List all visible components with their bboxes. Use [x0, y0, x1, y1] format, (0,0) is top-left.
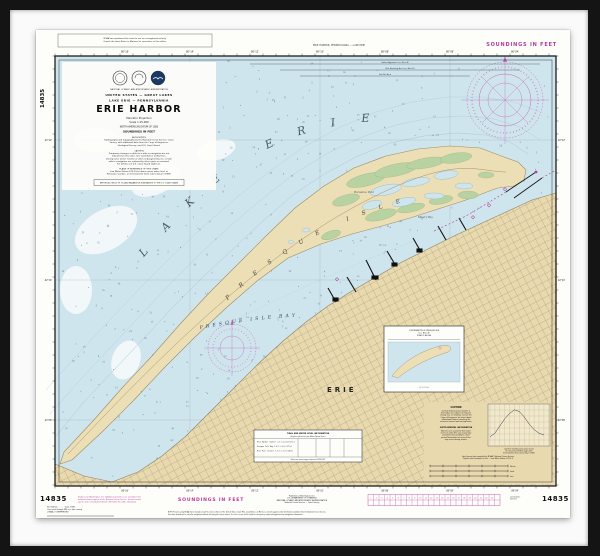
mat: Harbor Approach (see Note A) Pilot Board…	[10, 10, 588, 546]
svg-text:42°10': 42°10'	[558, 279, 566, 282]
svg-text:8: 8	[409, 498, 410, 500]
svg-text:indicated on this chart. See L: indicated on this chart. See Local Notic…	[112, 155, 167, 158]
lake-level-graph	[488, 404, 550, 446]
svg-text:this chart should not be used: this chart should not be used for naviga…	[168, 513, 303, 516]
svg-text:7: 7	[403, 498, 404, 500]
svg-text:80°04': 80°04'	[511, 490, 519, 493]
svg-text:17: 17	[458, 498, 460, 500]
svg-text:Consult the latest Notice to M: Consult the latest Notice to Mariners fo…	[103, 40, 167, 43]
svg-text:TIDAL AND WATER LEVEL INFORMAT: TIDAL AND WATER LEVEL INFORMATION	[287, 433, 330, 435]
chart-number-bottom-left: 14835	[40, 495, 67, 503]
svg-text:80°14': 80°14'	[186, 51, 194, 54]
svg-text:2: 2	[376, 498, 377, 500]
svg-text:NOTE: Persons using NOAA chart: NOTE: Persons using NOAA charts should c…	[168, 511, 326, 514]
svg-text:19: 19	[469, 498, 471, 500]
soundings-in-feet-bottom: SOUNDINGS IN FEET	[178, 497, 244, 503]
misery-bay-label: Misery Bay	[417, 215, 433, 219]
svg-text:80°04': 80°04'	[511, 51, 519, 54]
svg-text:42°12': 42°12'	[558, 139, 566, 142]
svg-text:Hydrography and topography by: Hydrography and topography by the Nation…	[104, 139, 173, 142]
framed-chart-photo: Harbor Approach (see Note A) Pilot Board…	[0, 0, 600, 556]
side-chart-number: 14835	[40, 89, 46, 108]
svg-text:Rimouski, Quebec, on Internati: Rimouski, Quebec, on International Great…	[107, 173, 171, 176]
svg-text:CONTINUATION OF PRESQUE ISLE: CONTINUATION OF PRESQUE ISLE	[409, 329, 440, 332]
svg-text:LAKE ERIE — PENNSYLVANIA: LAKE ERIE — PENNSYLVANIA	[109, 99, 169, 103]
svg-text:10: 10	[419, 498, 421, 500]
title-block: NATIONAL OCEANIC AND ATMOSPHERIC ADMINIS…	[62, 62, 216, 190]
soundings-in-feet-top: SOUNDINGS IN FEET	[486, 42, 557, 48]
svg-text:For details see U.S. Coast Gua: For details see U.S. Coast Guard Light L…	[117, 163, 161, 166]
svg-text:80°12': 80°12'	[251, 51, 259, 54]
svg-text:Pilot Boarding Area (see Note: Pilot Boarding Area (see Note B)	[386, 67, 415, 70]
svg-text:NORTH AMERICAN DATUM OF 1983: NORTH AMERICAN DATUM OF 1983	[120, 126, 159, 129]
svg-text:20: 20	[474, 498, 476, 500]
svg-text:80°14': 80°14'	[186, 490, 194, 493]
svg-text:80°16': 80°16'	[121, 490, 129, 493]
svg-text:22: 22	[485, 498, 487, 500]
svg-text:3: 3	[381, 498, 382, 500]
svg-text:entrance channel and turning b: entrance channel and turning basin.	[440, 420, 472, 423]
svg-text:AUTHORITIES: AUTHORITIES	[132, 136, 146, 139]
svg-text:SUPPLEMENTAL INFORMATION: SUPPLEMENTAL INFORMATION	[440, 427, 473, 429]
svg-text:PLANE OF REFERENCE OF THIS CHA: PLANE OF REFERENCE OF THIS CHART	[119, 168, 159, 171]
svg-text:80°06': 80°06'	[446, 490, 454, 493]
svg-text:(see Note A): (see Note A)	[418, 332, 429, 335]
top-margin-title: ERIE HARBOR, PENNSYLVANIA — LAKE ERIE	[313, 44, 365, 47]
svg-text:6: 6	[398, 498, 399, 500]
horseshoe-pond-label: Horseshoe Pond	[353, 191, 374, 194]
svg-text:Erie Harbor (Outer) 2.1 1: Erie Harbor (Outer) 2.1 1.4 0.8 571.2	[257, 441, 295, 444]
notes-area: CAUTION Limited federal project depths i…	[424, 402, 552, 484]
svg-text:0 1 2 3: 0 1 2 3 4	[420, 387, 429, 389]
svg-text:Scale 1:15,000: Scale 1:15,000	[129, 120, 149, 124]
inset-map-box: CONTINUATION OF PRESQUE ISLE(see Note A)…	[384, 326, 464, 392]
tide-table-box: TIDAL AND WATER LEVEL INFORMATION Height…	[254, 430, 362, 462]
svg-text:42°12': 42°12'	[45, 139, 53, 142]
svg-text:National Ocean Service — Coast: National Ocean Service — Coast Survey	[285, 501, 320, 504]
svg-text:80°06': 80°06'	[446, 51, 454, 54]
svg-text:14: 14	[441, 498, 443, 500]
svg-text:Mercator Projection: Mercator Projection	[126, 116, 152, 120]
svg-text:9: 9	[414, 498, 415, 500]
svg-text:30th Ed.: 30th Ed.	[510, 498, 518, 501]
chart-title: ERIE HARBOR	[96, 104, 182, 115]
svg-text:23: 23	[491, 498, 493, 500]
pollution-report-note: REPORT ALL SPILLS OF OIL AND HAZARDOUS S…	[100, 182, 179, 185]
svg-text:Presque Isle Bay 1.8 1: Presque Isle Bay 1.8 1.2 0.6 571.0	[257, 446, 292, 448]
svg-text:16: 16	[452, 498, 454, 500]
svg-text:Erie Pier (Inner) 1.6 1: Erie Pier (Inner) 1.6 1.1 0.5 570.8	[257, 451, 293, 453]
svg-text:Temporary changes or defects i: Temporary changes or defects in aids to …	[109, 152, 170, 155]
svg-text:Harbor Approach (see Note A): Harbor Approach (see Note A)	[381, 61, 408, 64]
svg-text:80°12': 80°12'	[251, 490, 259, 493]
svg-text:Depths and elevations in feet: Depths and elevations in feet — Low Wate…	[463, 457, 513, 460]
svg-text:80°08': 80°08'	[381, 51, 389, 54]
svg-text:Survey, with additional data f: Survey, with additional data from the Co…	[110, 141, 169, 144]
chart-paper: Harbor Approach (see Note A) Pilot Board…	[36, 30, 570, 518]
svg-text:5: 5	[392, 498, 393, 500]
svg-text:80°10': 80°10'	[316, 490, 324, 493]
svg-text:agents write: Distribution Br: agents write: Distribution Branch (N/CG3…	[78, 500, 137, 503]
svg-text:NOAA has reproduced this chart: NOAA has reproduced this chart for use a…	[104, 37, 167, 40]
svg-text:80°16': 80°16'	[121, 51, 129, 54]
svg-text:80°10': 80°10'	[316, 51, 324, 54]
svg-text:18: 18	[463, 498, 465, 500]
svg-text:80°08': 80°08'	[381, 490, 389, 493]
svg-text:Fish Net Area: Fish Net Area	[379, 73, 391, 76]
svg-text:15: 15	[447, 498, 449, 500]
svg-text:Low Water Datum 570.5 feet abo: Low Water Datum 570.5 feet above mean wa…	[110, 170, 168, 173]
nautical-chart: Harbor Approach (see Note A) Pilot Board…	[36, 30, 570, 518]
svg-text:13: 13	[436, 498, 438, 500]
svg-text:42°08': 42°08'	[558, 419, 566, 422]
chart-number-bottom-right: 14835	[542, 495, 569, 503]
svg-text:11: 11	[425, 498, 427, 500]
svg-text:1: 1	[370, 498, 371, 500]
svg-text:CAUTION: CAUTION	[450, 406, 461, 409]
svg-text:42°08': 42°08'	[45, 419, 53, 422]
svg-text:NATIONAL OCEANIC AND ATMOSPHER: NATIONAL OCEANIC AND ATMOSPHERIC ADMINIS…	[110, 88, 168, 91]
bottom-margin: 14835 Produced at Washington, D.C. Addit…	[40, 495, 569, 517]
svg-text:CAUTION: CAUTION	[134, 150, 144, 153]
svg-text:aids to navigation are replace: aids to navigation are replaced by other…	[109, 160, 170, 163]
svg-text:UNITED STATES — GREAT LAKES: UNITED STATES — GREAT LAKES	[105, 93, 172, 97]
svg-text:4: 4	[387, 498, 388, 500]
svg-text:21: 21	[480, 498, 482, 500]
svg-text:SOUNDINGS IN FEET: SOUNDINGS IN FEET	[123, 130, 155, 134]
svg-text:LORAN-C OVERPRINTED: LORAN-C OVERPRINTED	[47, 511, 69, 514]
svg-text:Geological Survey, and U.S. Co: Geological Survey, and U.S. Coast Guard.	[118, 144, 161, 147]
correction-record-grid: 1234567891011121314151617181920212223	[368, 495, 500, 506]
svg-text:12: 12	[430, 498, 432, 500]
svg-text:SCALE 1:80,000: SCALE 1:80,000	[417, 334, 432, 337]
svg-text:42°10': 42°10'	[45, 279, 53, 282]
city-label: ERIE	[327, 386, 357, 394]
svg-text:During some winter months or w: During some winter months or when endang…	[106, 157, 172, 160]
svg-text:may occur during storms.: may occur during storms.	[445, 438, 468, 441]
